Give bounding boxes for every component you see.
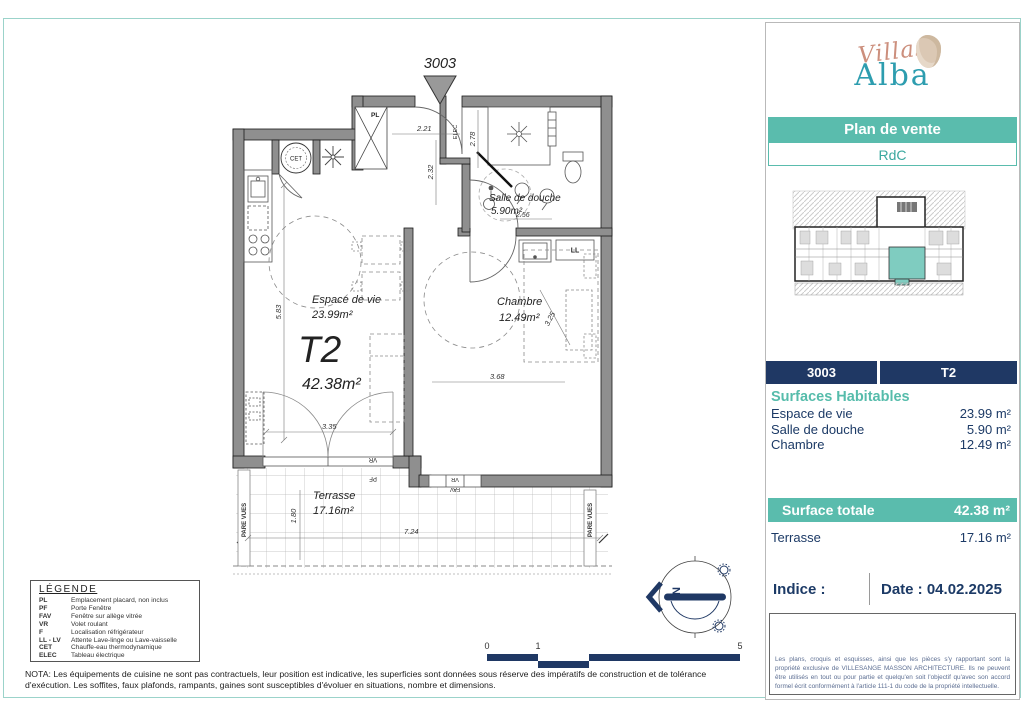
- surface-label: Espace de vie: [771, 406, 853, 421]
- legend-row: ELECTableau électrique: [39, 652, 199, 660]
- pare-vues-left-label: PARE VUES: [242, 503, 248, 537]
- legend-label: Fenêtre sur allège vitrée: [71, 613, 142, 620]
- unit-number-cell: 3003: [766, 361, 877, 384]
- espace-area: 23.99m²: [311, 309, 353, 321]
- terrasse-name: Terrasse: [313, 490, 355, 502]
- dim-terrasse-w: 7.24: [404, 527, 419, 536]
- toilet-icon: [563, 152, 583, 183]
- scale-bar: 0 1 5: [484, 641, 742, 668]
- ll-tag: LL: [571, 248, 580, 255]
- surface-row: Espace de vie 23.99 m²: [771, 406, 1011, 421]
- legend-abbr: ELEC: [39, 652, 71, 660]
- legend-box: LÉGENDE PLEmplacement placard, non inclu…: [30, 580, 200, 662]
- bathroom-fixtures: [479, 107, 594, 262]
- cet-water-heater: CET: [281, 143, 311, 173]
- terrasse-area: 17.16m²: [313, 505, 354, 517]
- legend-abbr: PF: [39, 605, 71, 613]
- legal-notice-text: Les plans, croquis et esquisses, ainsi q…: [775, 656, 1010, 692]
- legend-abbr: CET: [39, 644, 71, 652]
- fav-tag-chambre: FAV: [450, 486, 460, 492]
- dim-douche-h: 2.78: [468, 131, 477, 147]
- douche-area: 5.90m²: [491, 206, 523, 217]
- site-plan-thumbnail: [789, 187, 969, 305]
- dim-sejour-w: 3.35: [322, 422, 337, 431]
- type-label: T2: [298, 329, 342, 370]
- surface-row: Salle de douche 5.90 m²: [771, 422, 1011, 437]
- legend-label: Porte Fenêtre: [71, 605, 111, 612]
- plan-de-vente-banner: Plan de vente: [768, 117, 1017, 142]
- scale-0: 0: [484, 641, 489, 651]
- legend-abbr: LL - LV: [39, 637, 71, 645]
- surface-value: 12.49 m²: [960, 437, 1011, 452]
- legend-label: Chauffe-eau thermodynamique: [71, 644, 162, 651]
- scale-1: 1: [535, 641, 540, 651]
- surface-totale-label: Surface totale: [782, 498, 875, 522]
- douche-name: Salle de douche: [489, 193, 561, 204]
- surface-row: Chambre 12.49 m²: [771, 437, 1011, 452]
- pl-tag: PL: [371, 112, 379, 119]
- legend-label: Emplacement placard, non inclus: [71, 597, 168, 604]
- legal-notice-box: Les plans, croquis et esquisses, ainsi q…: [769, 613, 1016, 695]
- dim-sejour-h: 5.83: [274, 304, 283, 319]
- level-label: RdC: [768, 142, 1017, 166]
- legend-row: LL - LVAttente Lave-linge ou Lave-vaisse…: [39, 637, 199, 645]
- terrasse-value: 17.16 m²: [960, 530, 1011, 545]
- scale-5: 5: [737, 641, 742, 651]
- vr-tag-living: VR: [368, 456, 377, 462]
- vr-tag-chambre: VR: [451, 476, 459, 482]
- legend-row: VRVolet roulant: [39, 621, 199, 629]
- legend-title: LÉGENDE: [39, 584, 199, 595]
- surface-totale-value: 42.38 m²: [954, 498, 1010, 522]
- kitchen-fixtures: [244, 170, 272, 444]
- surface-value: 23.99 m²: [960, 406, 1011, 421]
- espace-name: Espace de vie: [312, 294, 381, 306]
- dim-chambre-w: 3.68: [490, 372, 505, 381]
- chambre-name: Chambre: [497, 296, 542, 308]
- surfaces-title: Surfaces Habitables: [771, 389, 910, 405]
- legend-row: PLEmplacement placard, non inclus: [39, 597, 199, 605]
- dim-hall-w: 2.21: [416, 124, 432, 133]
- legend-label: Attente Lave-linge ou Lave-vaisselle: [71, 637, 177, 644]
- brand-logo: Villas Alba: [766, 39, 1019, 91]
- surface-label: Salle de douche: [771, 422, 864, 437]
- highlighted-unit: [889, 247, 925, 279]
- unit-marker-label: 3003: [424, 56, 456, 72]
- pare-vues-right-label: PARE VUES: [588, 503, 594, 537]
- legend-abbr: F: [39, 629, 71, 637]
- date-label: Date : 04.02.2025: [881, 581, 1019, 598]
- legend-abbr: VR: [39, 621, 71, 629]
- fridge-snowflake-icon: [322, 146, 344, 168]
- legend-label: Localisation réfrigérateur: [71, 629, 144, 636]
- indice-date-divider: [869, 573, 870, 605]
- legend-row: FLocalisation réfrigérateur: [39, 629, 199, 637]
- dim-terrasse-h: 1.80: [289, 508, 298, 523]
- type-area: 42.38m²: [302, 376, 361, 393]
- plan-de-vente-page: PARE VUES PARE VUES: [0, 0, 1024, 723]
- unit-type-cell: T2: [880, 361, 1017, 384]
- compass-north-label: N: [671, 587, 683, 595]
- legend-row: PFPorte Fenêtre: [39, 605, 199, 613]
- sidebar: Villas Alba Plan de vente RdC: [765, 22, 1020, 700]
- legend-abbr: PL: [39, 597, 71, 605]
- brand-alba: Alba: [766, 61, 1019, 91]
- nota-text: NOTA: Les équipements de cuisine ne sont…: [25, 669, 741, 691]
- pf-tag-living: PF: [369, 475, 377, 481]
- legend-row: FAVFenêtre sur allège vitrée: [39, 613, 199, 621]
- legend-label: Tableau électrique: [71, 652, 125, 659]
- dim-hall-h: 2.32: [426, 164, 435, 180]
- terrasse-row: Terrasse 17.16 m²: [771, 530, 1011, 545]
- north-compass: N: [649, 556, 731, 638]
- legend-abbr: FAV: [39, 613, 71, 621]
- chambre-area: 12.49m²: [499, 312, 540, 324]
- unit-entry-marker: 3003: [424, 56, 456, 104]
- legend-row: CETChauffe-eau thermodynamique: [39, 644, 199, 652]
- surface-value: 5.90 m²: [967, 422, 1011, 437]
- cet-tag: CET: [290, 157, 302, 163]
- legend-label: Volet roulant: [71, 621, 108, 628]
- terrasse-label: Terrasse: [771, 530, 821, 545]
- surface-label: Chambre: [771, 437, 824, 452]
- surface-totale-bar: Surface totale 42.38 m²: [768, 498, 1017, 522]
